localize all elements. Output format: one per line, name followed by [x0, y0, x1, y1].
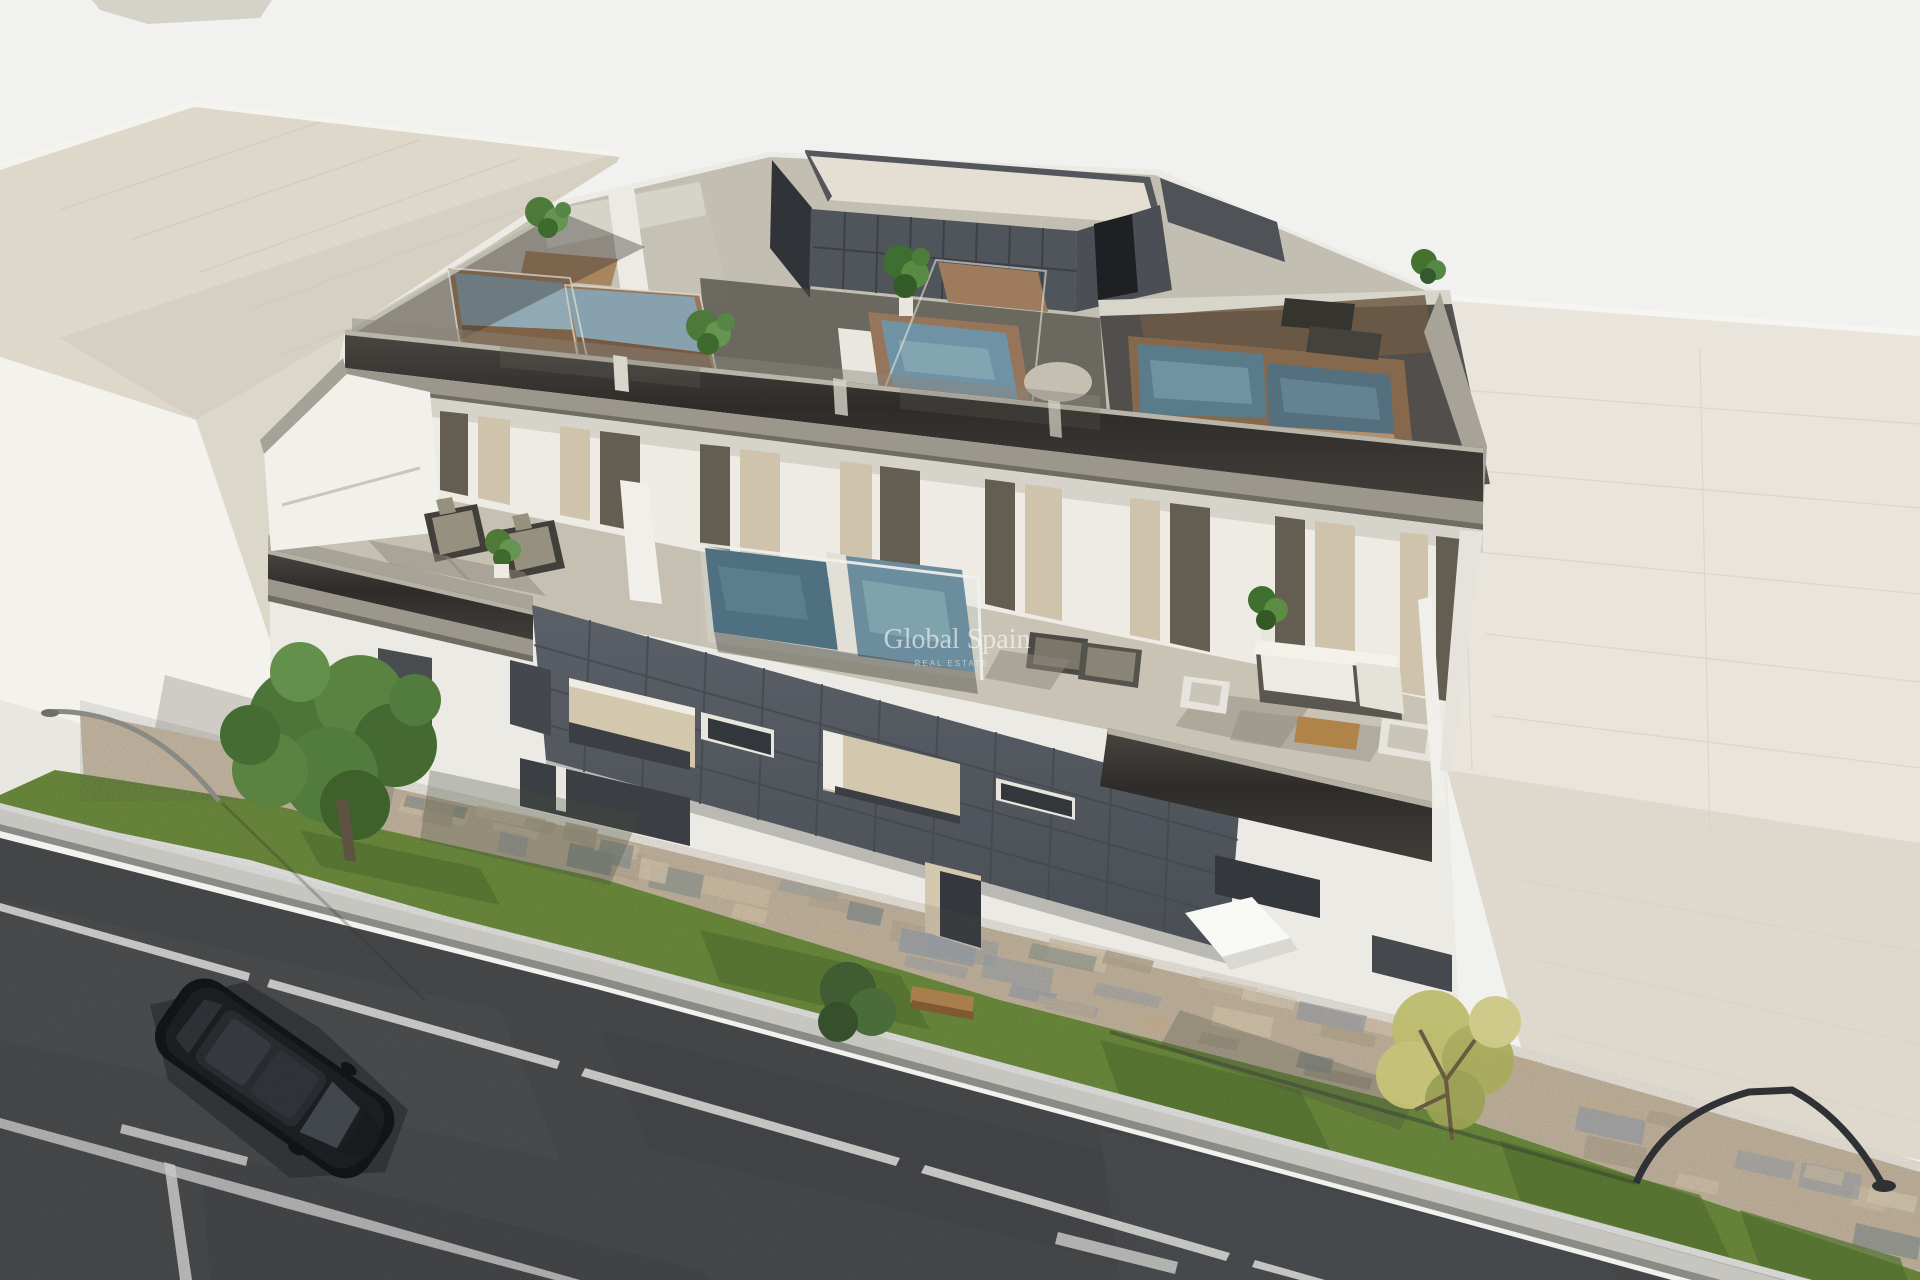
svg-text:REAL ESTATE: REAL ESTATE [915, 659, 990, 668]
svg-text:Global Spain: Global Spain [884, 624, 1031, 655]
